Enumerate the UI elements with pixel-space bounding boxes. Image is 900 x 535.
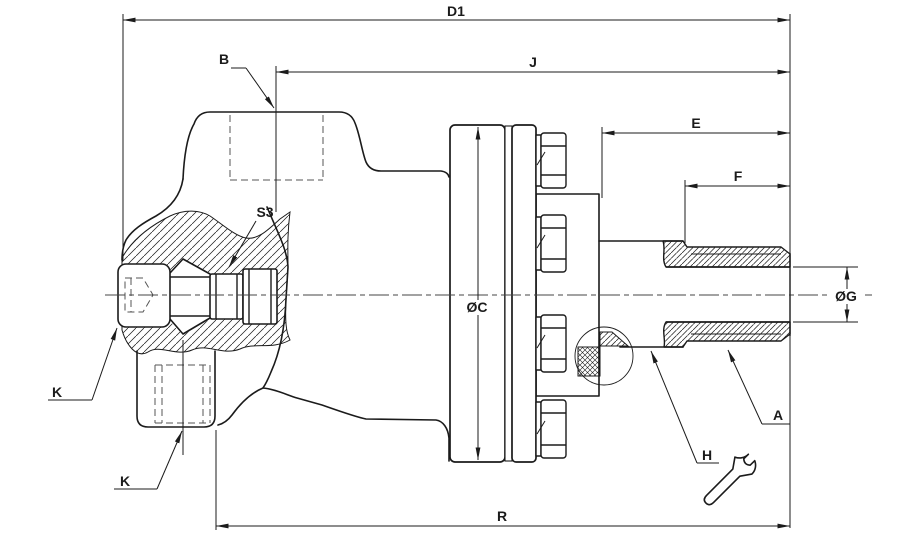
label-d1: D1: [447, 3, 465, 19]
label-j: J: [529, 54, 537, 70]
label-dia-c: ØC: [467, 299, 488, 315]
seal-detail: [575, 327, 633, 385]
flange-assembly: [450, 125, 599, 462]
casting-hump-left: [218, 388, 263, 425]
threaded-end: [663, 241, 790, 347]
label-b: B: [219, 51, 229, 67]
bolt: [536, 215, 566, 272]
label-a: A: [773, 407, 783, 423]
label-r: R: [497, 508, 507, 524]
inlet-fitting: [118, 258, 277, 335]
rotor-flange-disc: [512, 125, 536, 462]
label-k-upper: K: [52, 384, 62, 400]
leader-b: [231, 68, 274, 108]
casting-neck-profile: [263, 207, 449, 461]
body-nut: [243, 269, 277, 324]
bolt: [536, 315, 566, 372]
label-f: F: [734, 168, 743, 184]
label-s3: S3: [256, 204, 273, 220]
technical-drawing-page: D1 J B E F ØG ØC S3 K K A H R: [0, 0, 900, 535]
label-dia-g: ØG: [835, 288, 857, 304]
cap-nut: [118, 264, 170, 327]
technical-drawing: D1 J B E F ØG ØC S3 K K A H R: [0, 0, 900, 535]
bolt: [536, 400, 566, 458]
bolt: [536, 133, 566, 188]
gasket-plate: [505, 126, 512, 461]
s3-nut: [210, 274, 243, 319]
rotor-shaft: [575, 241, 790, 385]
label-e: E: [691, 115, 700, 131]
label-h: H: [702, 447, 712, 463]
label-k-lower: K: [120, 473, 130, 489]
top-boss-outline: [183, 112, 449, 179]
